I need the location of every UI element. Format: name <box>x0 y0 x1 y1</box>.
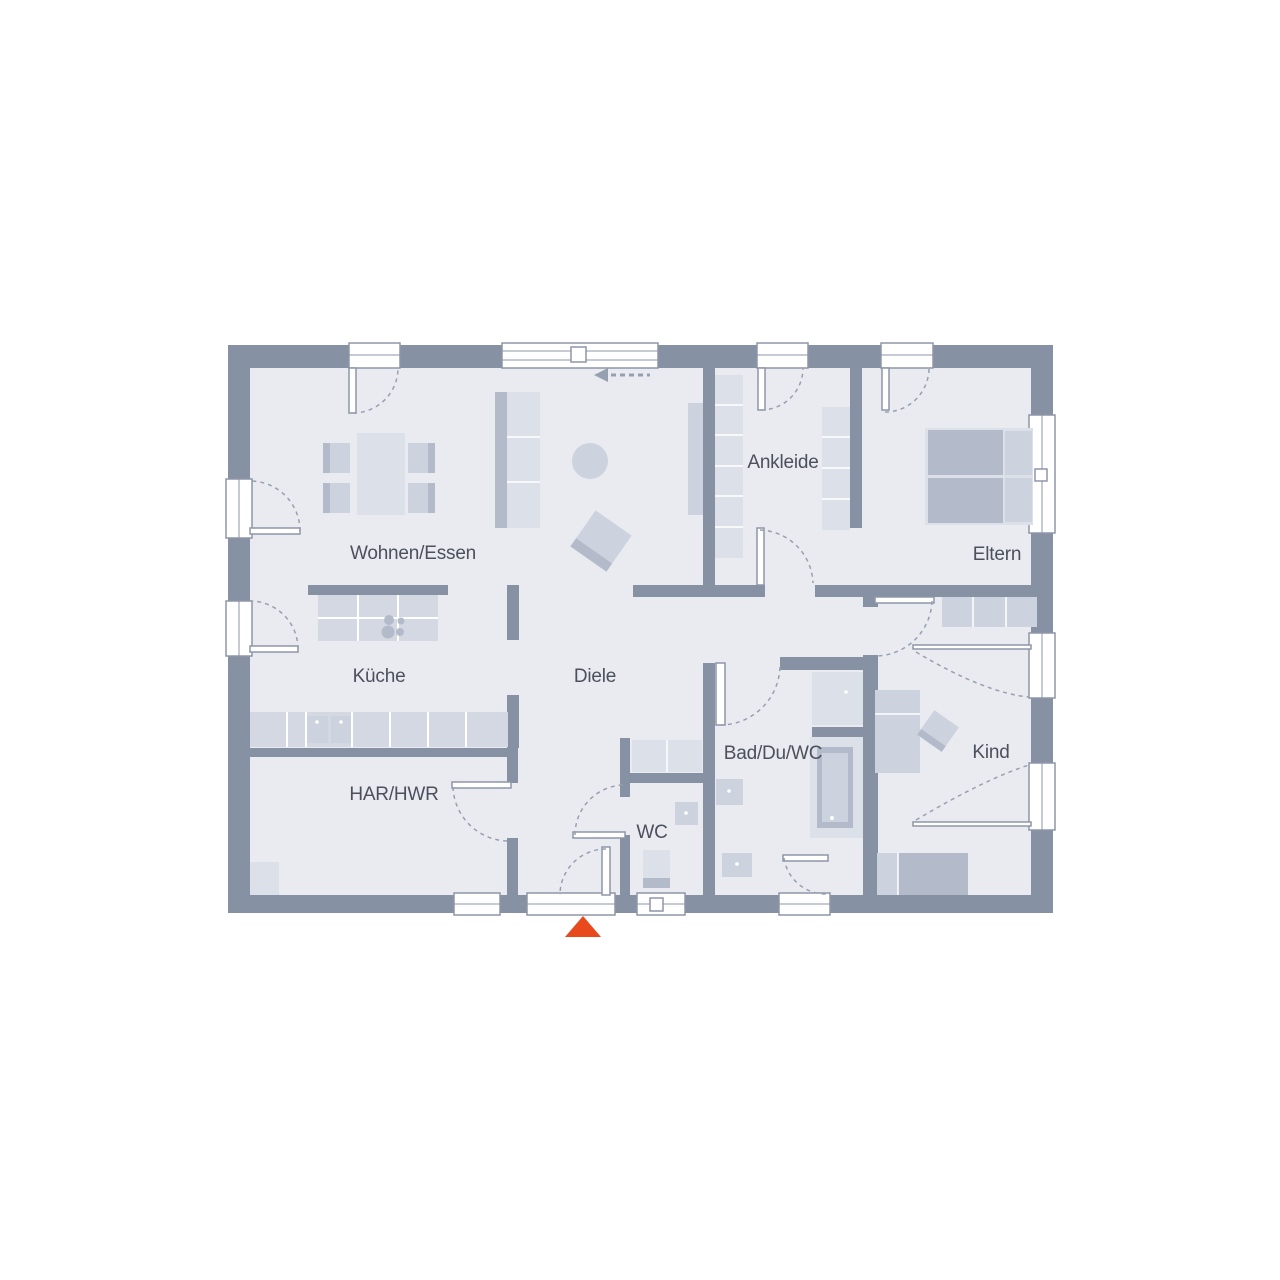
room-label-har-hwr: HAR/HWR <box>349 784 438 805</box>
hall-sideboard <box>632 740 702 772</box>
toilet <box>643 850 670 888</box>
window-handle-icon <box>1035 469 1047 481</box>
wall-wc-west-lower <box>620 835 630 897</box>
wall-wc-north <box>622 773 703 783</box>
wall-kueche-south <box>250 748 518 757</box>
wall-kueche-east-upper <box>507 585 519 640</box>
wall-bad-west <box>703 663 715 897</box>
dresser <box>942 597 1037 627</box>
room-label-kind: Kind <box>972 742 1009 763</box>
kitchen-island <box>318 595 438 641</box>
wall-kueche-east-lower <box>507 695 519 748</box>
window-kind-right-lower <box>1029 763 1055 830</box>
wall-bath-partition <box>812 727 863 737</box>
room-label-wohnen-essen: Wohnen/Essen <box>350 543 476 564</box>
floor-mat <box>250 862 279 895</box>
entrance-door-opening <box>527 893 615 915</box>
room-label-eltern: Eltern <box>973 544 1021 565</box>
room-label-diele: Diele <box>574 666 616 687</box>
room-label-wc: WC <box>636 822 667 843</box>
window-handle-icon <box>571 347 586 362</box>
wall-ankleide-east <box>850 368 862 528</box>
window-eltern-top <box>881 343 933 368</box>
window-kind-right-upper <box>1029 633 1055 698</box>
shower <box>812 672 863 725</box>
wall-eltern-south <box>815 585 1031 597</box>
kitchen-counter <box>250 712 508 747</box>
wall-bad-north <box>780 657 863 670</box>
window-handle-icon <box>650 898 663 911</box>
wall-kitchen-island <box>308 585 448 595</box>
window-wohnen-left <box>226 479 252 538</box>
window-kueche-left <box>226 601 252 656</box>
round-side-table <box>572 443 608 479</box>
wall-corridor-north <box>633 585 765 597</box>
double-bed <box>925 428 1033 525</box>
bathroom-sink-upper <box>716 779 743 805</box>
wall-har-east-lower <box>507 838 518 897</box>
room-label-ankleide: Ankleide <box>747 452 818 473</box>
room-label-kueche: Küche <box>353 666 406 687</box>
shelf-unit <box>495 392 540 528</box>
window-ankleide-top <box>757 343 808 368</box>
wall-ankleide-west <box>703 368 715 597</box>
kind-bed <box>875 690 920 773</box>
floor-plan: Wohnen/Essen Küche Diele HAR/HWR WC Bad/… <box>0 0 1280 1280</box>
wardrobe-right <box>822 407 850 530</box>
tall-cabinet <box>688 403 703 515</box>
room-label-bad-du-wc: Bad/Du/WC <box>724 743 823 764</box>
wall-wc-west-upper <box>620 738 630 797</box>
window-bad-bottom <box>779 893 830 915</box>
wc-sink <box>675 802 698 825</box>
wardrobe-left <box>715 375 743 558</box>
exterior-door-top-left <box>349 343 400 368</box>
entrance-marker-icon <box>565 916 601 937</box>
floor-plan-page: Wohnen/Essen Küche Diele HAR/HWR WC Bad/… <box>0 0 1280 1280</box>
sofa-bed <box>877 853 968 895</box>
window-har-bottom <box>454 893 500 915</box>
bathroom-sink-lower <box>722 853 752 877</box>
